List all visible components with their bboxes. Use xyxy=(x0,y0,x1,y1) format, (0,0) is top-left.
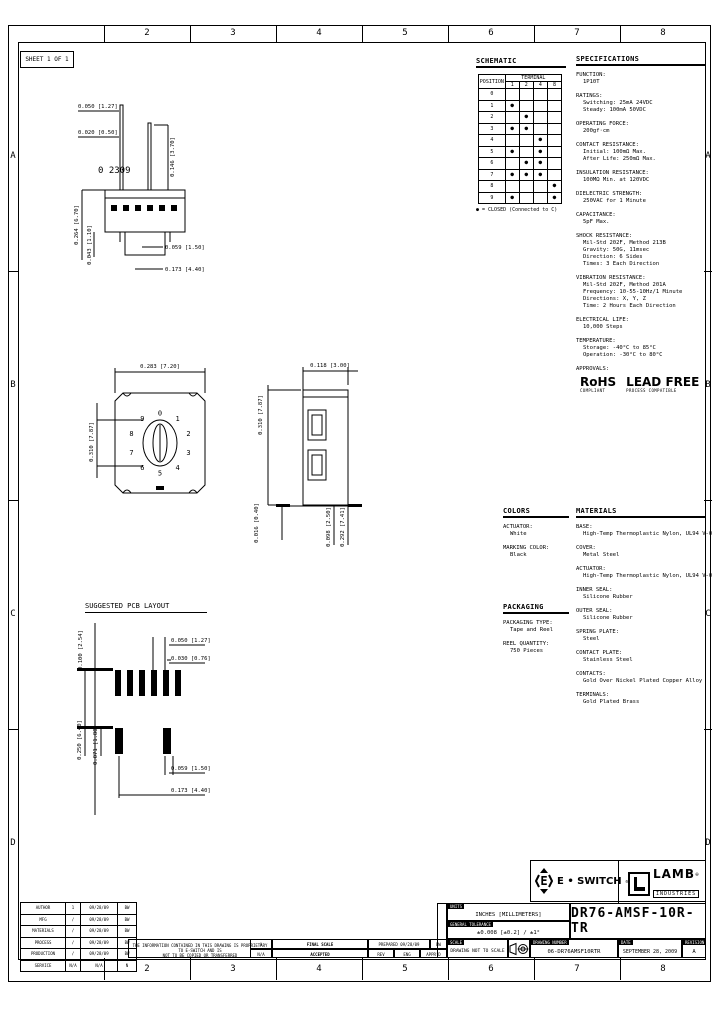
zone-tick xyxy=(276,958,277,980)
zone-label: B xyxy=(705,380,710,390)
front-view: 0.050 [1.27] 0.020 [0.50] 0 2309 0.146 [… xyxy=(70,95,210,315)
zone-tick xyxy=(704,500,712,501)
zone-label: C xyxy=(705,609,710,619)
spec-section: DIELECTRIC STRENGTH:250VAC for 1 Minute xyxy=(576,191,706,205)
col-terminal: TERMINAL xyxy=(505,75,561,82)
closed-contact-dot: ● xyxy=(553,194,557,201)
zone-label: C xyxy=(10,609,15,619)
contact-cell xyxy=(533,100,547,112)
signoff-cell: / xyxy=(66,914,81,926)
contact-cell xyxy=(505,158,519,170)
truth-table-row: 2● xyxy=(479,112,562,124)
dial-digit: 0 xyxy=(158,410,162,418)
spec-section-value: Mil-Std 202F, Method 201A xyxy=(583,282,706,289)
signoff-cell: PRODUCTION xyxy=(21,949,66,961)
spec-section: RATINGS:Switching: 25mA 24VDCSteady: 100… xyxy=(576,93,706,114)
disclaimer-na-cell: N/A xyxy=(250,949,272,959)
spec-section-value: Time: 2 Hours Each Direction xyxy=(583,303,706,310)
contact-cell xyxy=(519,192,533,204)
dim-label: 0.050 [1.27] xyxy=(78,104,118,110)
dial-digit: 6 xyxy=(140,464,144,472)
closed-contact-dot: ● xyxy=(539,171,543,178)
spec-section-value: Switching: 25mA 24VDC xyxy=(583,100,706,107)
zone-tick xyxy=(276,25,277,42)
contact-cell: ● xyxy=(505,123,519,135)
tolerance-cell: GENERAL TOLERANCE ±0.008 [±0.2] / ±1° xyxy=(447,921,570,939)
prepared-date: 09/28/09 xyxy=(400,942,419,947)
zone-label: 3 xyxy=(230,964,235,974)
spec-section-value: 5pF Max. xyxy=(583,219,706,226)
drawing-number-cell: DRAWING NUMBER 06-DR76AMSF10RTR xyxy=(530,939,618,958)
zone-tick xyxy=(104,25,105,42)
zone-label: 4 xyxy=(316,964,321,974)
contact-cell: ● xyxy=(505,192,519,204)
dim-label: 0.250 [6.40] xyxy=(77,720,83,760)
spec-section-label: MARKING COLOR: xyxy=(503,545,569,552)
dim-label: 0.310 [7.87] xyxy=(258,395,264,435)
zone-tick xyxy=(448,25,449,42)
zone-label: D xyxy=(10,838,15,848)
lamb-sub-name: INDUSTRIES xyxy=(653,890,699,898)
position-cell: 7 xyxy=(479,169,506,181)
spec-section-label: OUTER SEAL: xyxy=(576,608,706,615)
dim-label: 0.059 [1.50] xyxy=(171,766,211,772)
signoff-cell: 09/28/09 xyxy=(81,903,118,915)
zone-tick xyxy=(620,958,621,980)
dial-digit: 8 xyxy=(129,430,133,438)
closed-contact-dot: ● xyxy=(553,182,557,189)
spec-section-label: VIBRATION RESISTANCE: xyxy=(576,275,706,282)
truth-table-row: 4● xyxy=(479,135,562,147)
zone-tick xyxy=(362,958,363,980)
contact-cell xyxy=(519,89,533,101)
position-cell: 5 xyxy=(479,146,506,158)
terminal-col-header: 1 xyxy=(505,82,519,89)
sheet-count-label: SHEET 1 OF 1 xyxy=(25,56,68,63)
rohs-text: RoHS xyxy=(580,376,616,388)
scale-cell: SCALE DRAWING NOT TO SCALE xyxy=(447,939,508,958)
eswitch-logo-icon: E xyxy=(535,868,553,894)
closed-contact-dot: ● xyxy=(510,194,514,201)
dim-label: 0.030 [0.76] xyxy=(171,656,211,662)
part-number: DR76-AMSF-10R-TR xyxy=(571,906,705,936)
zone-label: 3 xyxy=(230,28,235,38)
truth-table-row: 9●● xyxy=(479,192,562,204)
eng-label: ENG xyxy=(403,952,410,957)
spec-section-label: INNER SEAL: xyxy=(576,587,706,594)
dim-label: 0.173 [4.40] xyxy=(165,267,205,273)
final-scale-cell: FINAL SCALE xyxy=(272,939,368,949)
spec-section-label: OPERATING FORCE: xyxy=(576,121,706,128)
contact-cell: ● xyxy=(519,123,533,135)
contact-cell: ● xyxy=(519,112,533,124)
lamb-logo-text: LAMB® INDUSTRIES xyxy=(653,869,700,899)
leadfree-badge: LEAD FREE PROCESS COMPATIBLE xyxy=(626,376,699,393)
closed-contact-dot: ● xyxy=(524,113,528,120)
spec-section-label: CONTACT RESISTANCE: xyxy=(576,142,706,149)
spec-section-label: ELECTRICAL LIFE: xyxy=(576,317,706,324)
spec-section-value: Metal Steel xyxy=(583,552,706,559)
signoff-row: AUTHOR109/28/09BW xyxy=(21,903,137,915)
spec-section-value: Frequency: 10-55-10Hz/1 Minute xyxy=(583,289,706,296)
contact-cell xyxy=(533,123,547,135)
contact-cell xyxy=(505,135,519,147)
zone-tick xyxy=(534,25,535,42)
signoff-cell: N xyxy=(118,960,137,972)
contact-cell: ● xyxy=(519,158,533,170)
spec-section-value: Direction: 6 Sides xyxy=(583,254,706,261)
zone-tick xyxy=(8,500,18,501)
contact-cell xyxy=(519,100,533,112)
logo-box: E E • SWITCH ® LAMB® INDUSTRIES xyxy=(530,860,706,902)
spec-section-value: Initial: 100mΩ Max. xyxy=(583,149,706,156)
rohs-badge: RoHS COMPLIANT xyxy=(580,376,616,393)
position-cell: 6 xyxy=(479,158,506,170)
revision-label: REVISION xyxy=(683,940,706,945)
spec-section-value: Directions: X, Y, Z xyxy=(583,296,706,303)
scale-label: SCALE xyxy=(448,940,464,945)
spec-section-label: PACKAGING TYPE: xyxy=(503,620,569,627)
lamb-logo: LAMB® INDUSTRIES xyxy=(628,869,700,899)
contact-cell: ● xyxy=(547,181,561,193)
units-value: INCHES [MILLIMETERS] xyxy=(448,912,569,918)
leadfree-text: LEAD FREE xyxy=(626,376,699,388)
side-view: 0.118 [3.00] 0.310 [7.87] 0.016 [0.40] 0… xyxy=(248,355,368,555)
spec-section-label: INSULATION RESISTANCE: xyxy=(576,170,706,177)
part-marking: 0 2309 xyxy=(98,166,131,176)
pcb-layout-view: 0.050 [1.27] 0.030 [0.76] 0.100 [2.54] 0… xyxy=(75,615,235,825)
truth-table-row: 7●●● xyxy=(479,169,562,181)
spec-section-label: ACTUATOR: xyxy=(503,524,569,531)
signoff-cell: BW xyxy=(118,926,137,938)
contact-cell xyxy=(533,89,547,101)
pcb-layout-title: SUGGESTED PCB LAYOUT xyxy=(85,602,207,613)
spec-section-label: TEMPERATURE: xyxy=(576,338,706,345)
dial-digit: 4 xyxy=(175,464,179,472)
contact-cell xyxy=(519,181,533,193)
spec-section-value: Storage: -40°C to 85°C xyxy=(583,345,706,352)
contact-cell: ● xyxy=(533,158,547,170)
sheet-count-box: SHEET 1 OF 1 xyxy=(20,51,74,68)
dim-label: 0.310 [7.87] xyxy=(89,422,95,462)
signoff-cell: BW xyxy=(118,903,137,915)
projection-cell xyxy=(508,939,530,958)
closed-contact-dot: ● xyxy=(510,148,514,155)
zone-tick xyxy=(620,25,621,42)
svg-text:E: E xyxy=(540,874,547,888)
contact-cell xyxy=(519,146,533,158)
position-cell: 2 xyxy=(479,112,506,124)
zone-tick xyxy=(8,729,18,730)
spec-section: OPERATING FORCE:200gf·cm xyxy=(576,121,706,135)
contact-cell: ● xyxy=(533,146,547,158)
spec-section-label: CONTACTS: xyxy=(576,671,706,678)
contact-cell: ● xyxy=(505,100,519,112)
spec-section: ELECTRICAL LIFE:10,000 Steps xyxy=(576,317,706,331)
accepted-cell: ACCEPTED xyxy=(272,949,368,959)
zone-label: 8 xyxy=(660,28,665,38)
signoff-row: MFG/09/28/09BW xyxy=(21,914,137,926)
dial-digit: 3 xyxy=(186,449,190,457)
signoff-cell: BW xyxy=(118,914,137,926)
spec-section-label: CAPACITANCE: xyxy=(576,212,706,219)
zone-label: 4 xyxy=(316,28,321,38)
schematic-title: SCHEMATIC xyxy=(476,57,566,68)
contact-cell xyxy=(547,169,561,181)
revision-cell: REVISION A xyxy=(682,939,706,958)
spec-section-value: High-Temp Thermoplastic Nylon, UL94 V-0 xyxy=(583,531,706,538)
truth-table-row: 0 xyxy=(479,89,562,101)
closed-contact-dot: ● xyxy=(539,159,543,166)
closed-contact-dot: ● xyxy=(510,102,514,109)
contact-cell xyxy=(505,89,519,101)
spec-section-value: Gold Over Nickel Plated Copper Alloy xyxy=(583,678,706,685)
zone-label: B xyxy=(10,380,15,390)
terminal-col-header: 4 xyxy=(533,82,547,89)
signoff-cell: 09/28/09 xyxy=(81,937,118,949)
spec-section-value: Times: 3 Each Direction xyxy=(583,261,706,268)
revision-value: A xyxy=(683,949,705,955)
drawing-number-label: DRAWING NUMBER xyxy=(531,940,569,945)
dim-label: 0.173 [4.40] xyxy=(171,788,211,794)
lamb-reg-mark: ® xyxy=(695,872,700,877)
spec-section-label: REEL QUANTITY: xyxy=(503,641,569,648)
contact-cell xyxy=(519,135,533,147)
spec-section: OUTER SEAL:Silicone Rubber xyxy=(576,608,706,622)
signoff-cell: 09/28/09 xyxy=(81,914,118,926)
tolerance-value: ±0.008 [±0.2] / ±1° xyxy=(448,930,569,936)
lamb-logo-icon xyxy=(628,872,650,896)
spec-section-value: 200gf·cm xyxy=(583,128,706,135)
zone-tick xyxy=(190,25,191,42)
colors-title: COLORS xyxy=(503,507,569,518)
position-cell: 8 xyxy=(479,181,506,193)
contact-cell xyxy=(547,135,561,147)
signoff-cell: MFG xyxy=(21,914,66,926)
spec-section-value: 250VAC for 1 Minute xyxy=(583,198,706,205)
zone-label: 2 xyxy=(144,28,149,38)
signoff-cell: / xyxy=(66,926,81,938)
disclaimer-rev: A xyxy=(260,942,262,947)
zone-label: 7 xyxy=(574,964,579,974)
spec-section-label: RATINGS: xyxy=(576,93,706,100)
spec-section-label: FUNCTION: xyxy=(576,72,706,79)
spec-section: CONTACT PLATE:Stainless Steel xyxy=(576,650,706,664)
closed-contact-dot: ● xyxy=(524,159,528,166)
signoff-cell: N/A xyxy=(66,960,81,972)
date-value: SEPTEMBER 28, 2009 xyxy=(619,949,681,955)
spec-section: ACTUATOR:High-Temp Thermoplastic Nylon, … xyxy=(576,566,706,580)
spec-section: SPRING PLATE:Steel xyxy=(576,629,706,643)
spec-section: TEMPERATURE:Storage: -40°C to 85°COperat… xyxy=(576,338,706,359)
signoff-cell: 1 xyxy=(66,903,81,915)
signoff-cell: / xyxy=(66,937,81,949)
signoff-cell: 09/28/09 xyxy=(81,926,118,938)
contact-cell xyxy=(547,112,561,124)
contact-cell: ● xyxy=(533,135,547,147)
prepared-cell: PREPARED 09/28/09 xyxy=(368,939,430,949)
contact-cell xyxy=(547,100,561,112)
scale-value: DRAWING NOT TO SCALE xyxy=(448,949,507,954)
zone-tick xyxy=(448,958,449,980)
spec-section-value: Black xyxy=(510,552,569,559)
spec-section-label: COVER: xyxy=(576,545,706,552)
lamb-name: LAMB xyxy=(653,867,695,881)
spec-section-value: Silicone Rubber xyxy=(583,615,706,622)
units-cell: UNITS INCHES [MILLIMETERS] xyxy=(447,903,570,921)
signoff-row: PRODUCTION/09/28/09BW xyxy=(21,949,137,961)
zone-label: 5 xyxy=(402,964,407,974)
zone-tick xyxy=(8,271,18,272)
spec-section: REEL QUANTITY:750 Pieces xyxy=(503,641,569,655)
top-view: 0123456789 0.283 [7.20] 0.310 [7.87] xyxy=(85,358,220,508)
date-cell: DATE SEPTEMBER 28, 2009 xyxy=(618,939,682,958)
zone-tick xyxy=(362,25,363,42)
dim-label: 0.043 [1.10] xyxy=(87,225,93,265)
dim-label: 0.283 [7.20] xyxy=(140,364,180,370)
dial-digit: 5 xyxy=(158,470,162,478)
closed-contact-dot: ● xyxy=(539,148,543,155)
terminal-col-header: 2 xyxy=(519,82,533,89)
pcb-layout-title-text: SUGGESTED PCB LAYOUT xyxy=(85,602,169,610)
signoff-row: PROCESS/09/28/09BW xyxy=(21,937,137,949)
spec-section: CONTACT RESISTANCE:Initial: 100mΩ Max.Af… xyxy=(576,142,706,163)
spec-section-value: Operation: -30°C to 80°C xyxy=(583,352,706,359)
contact-cell: ● xyxy=(505,146,519,158)
final-scale-label: FINAL SCALE xyxy=(307,942,334,947)
dial-digit: 9 xyxy=(140,415,144,423)
spec-section-value: After Life: 250mΩ Max. xyxy=(583,156,706,163)
dial-digit: 1 xyxy=(175,415,179,423)
drawing-sheet: 22334455667788AABBCCDD SHEET 1 OF 1 xyxy=(0,0,720,1012)
col-position: POSITION xyxy=(479,75,506,89)
position-cell: 0 xyxy=(479,89,506,101)
terminal-col-header: 8 xyxy=(547,82,561,89)
materials-section: MATERIALS BASE:High-Temp Thermoplastic N… xyxy=(576,507,706,713)
spec-section-label: DIELECTRIC STRENGTH: xyxy=(576,191,706,198)
contact-cell xyxy=(547,158,561,170)
dim-label: 0.146 [3.70] xyxy=(170,137,176,177)
dim-label: 0.050 [1.27] xyxy=(171,638,211,644)
signoff-cell: 09/28/09 xyxy=(81,949,118,961)
dial-digit: 2 xyxy=(186,430,190,438)
zone-label: D xyxy=(705,838,710,848)
specifications-title: SPECIFICATIONS xyxy=(576,55,706,66)
spec-section-label: CONTACT PLATE: xyxy=(576,650,706,657)
rev-label: REV xyxy=(377,952,384,957)
spec-section-value: White xyxy=(510,531,569,538)
dim-label: 0.292 [7.41] xyxy=(340,507,346,547)
zone-tick xyxy=(704,729,712,730)
spec-section-label: SPRING PLATE: xyxy=(576,629,706,636)
closed-contact-dot: ● xyxy=(510,125,514,132)
spec-section-value: Mil-Std 202F, Method 213B xyxy=(583,240,706,247)
spec-section: COVER:Metal Steel xyxy=(576,545,706,559)
closed-contact-dot: ● xyxy=(524,171,528,178)
contact-cell xyxy=(533,112,547,124)
truth-table-row: 1● xyxy=(479,100,562,112)
zone-label: 6 xyxy=(488,28,493,38)
signoff-cell: PROCESS xyxy=(21,937,66,949)
truth-table-row: 8● xyxy=(479,181,562,193)
eng-cell: ENG xyxy=(394,949,420,959)
dim-label: 0.098 [2.50] xyxy=(326,507,332,547)
zone-label: A xyxy=(705,151,710,161)
disclaimer-na: N/A xyxy=(257,952,264,957)
zone-label: 5 xyxy=(402,28,407,38)
spec-section-value: 1P10T xyxy=(583,79,706,86)
spec-section: FUNCTION:1P10T xyxy=(576,72,706,86)
packaging-section: PACKAGING PACKAGING TYPE:Tape and ReelRE… xyxy=(503,603,569,662)
materials-title: MATERIALS xyxy=(576,507,706,518)
signoff-table: AUTHOR109/28/09BWMFG/09/28/09BWMATERIALS… xyxy=(20,902,137,972)
specifications-section: SPECIFICATIONS FUNCTION:1P10TRATINGS:Swi… xyxy=(576,55,706,400)
signoff-cell: MATERIALS xyxy=(21,926,66,938)
contact-cell xyxy=(547,146,561,158)
drawing-number: 06-DR76AMSF10RTR xyxy=(531,949,617,955)
spec-section: PACKAGING TYPE:Tape and Reel xyxy=(503,620,569,634)
spec-section: TERMINALS:Gold Plated Brass xyxy=(576,692,706,706)
contact-cell xyxy=(547,89,561,101)
projection-symbol-icon xyxy=(509,942,529,956)
spec-section-value: 750 Pieces xyxy=(510,648,569,655)
truth-table-row: 5●● xyxy=(479,146,562,158)
position-cell: 9 xyxy=(479,192,506,204)
tolerance-label: GENERAL TOLERANCE xyxy=(448,922,493,927)
spec-section-value: Silicone Rubber xyxy=(583,594,706,601)
spec-section-value: High-Temp Thermoplastic Nylon, UL94 V-0 xyxy=(583,573,706,580)
spec-section: ACTUATOR:White xyxy=(503,524,569,538)
approvals-badges: RoHS COMPLIANT LEAD FREE PROCESS COMPATI… xyxy=(580,376,706,393)
zone-label: 8 xyxy=(660,964,665,974)
spec-section-label: BASE: xyxy=(576,524,706,531)
signoff-row: SERVICEN/AN/AN xyxy=(21,960,137,972)
packaging-title: PACKAGING xyxy=(503,603,569,614)
signoff-cell: N/A xyxy=(81,960,118,972)
disclaimer-rev-cell: A xyxy=(250,939,272,949)
contact-cell: ● xyxy=(547,192,561,204)
truth-table-row: 3●● xyxy=(479,123,562,135)
dim-label: 0.016 [0.40] xyxy=(254,503,260,543)
zone-label: 7 xyxy=(574,28,579,38)
spec-section-value: Gravity: 50G, 11msec xyxy=(583,247,706,254)
spec-section-label: TERMINALS: xyxy=(576,692,706,699)
spec-section-value: Stainless Steel xyxy=(583,657,706,664)
dial-digit: 7 xyxy=(129,449,133,457)
signoff-row: MATERIALS/09/28/09BW xyxy=(21,926,137,938)
dim-label: 0.020 [0.50] xyxy=(78,130,118,136)
schematic-legend: ● = CLOSED (Connected to C) xyxy=(476,207,566,213)
spec-section: INSULATION RESISTANCE:100MΩ Min. at 120V… xyxy=(576,170,706,184)
signoff-cell: / xyxy=(66,949,81,961)
spec-section: SHOCK RESISTANCE:Mil-Std 202F, Method 21… xyxy=(576,233,706,268)
spec-section-value: 100MΩ Min. at 120VDC xyxy=(583,177,706,184)
dim-label: 0.118 [3.00] xyxy=(310,363,350,369)
rev-cell: REV xyxy=(368,949,394,959)
contact-cell xyxy=(533,192,547,204)
spec-section: MARKING COLOR:Black xyxy=(503,545,569,559)
dim-label: 0.071 [1.80] xyxy=(93,725,99,765)
closed-contact-dot: ● xyxy=(524,125,528,132)
part-number-cell: DR76-AMSF-10R-TR xyxy=(570,903,706,939)
spec-section-value: Gold Plated Brass xyxy=(583,699,706,706)
spec-section: CONTACTS:Gold Over Nickel Plated Copper … xyxy=(576,671,706,685)
closed-contact-dot: ● xyxy=(539,136,543,143)
zone-label: A xyxy=(10,151,15,161)
signoff-cell: SERVICE xyxy=(21,960,66,972)
zone-tick xyxy=(190,958,191,980)
signoff-cell: AUTHOR xyxy=(21,903,66,915)
